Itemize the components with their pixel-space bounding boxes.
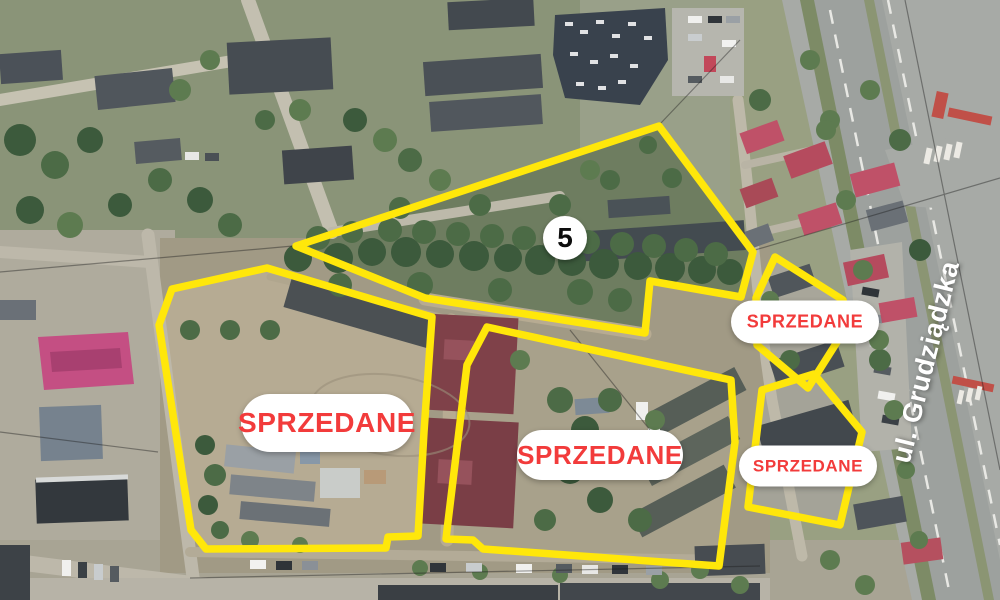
sold-badge-middle: SPRZEDANE: [517, 430, 683, 480]
sold-badge-top-right-text: SPRZEDANE: [747, 312, 863, 333]
sold-badge-left-text: SPRZEDANE: [238, 407, 416, 439]
sold-badge-top-right: SPRZEDANE: [731, 301, 879, 344]
sold-badge-bottom-right-text: SPRZEDANE: [753, 456, 863, 476]
sold-badge-left: SPRZEDANE: [241, 394, 413, 452]
sold-badge-middle-text: SPRZEDANE: [517, 440, 683, 471]
plot-number-marker[interactable]: 5: [543, 216, 587, 260]
aerial-map: SPRZEDANE SPRZEDANE SPRZEDANE SPRZEDANE …: [0, 0, 1000, 600]
sold-badge-bottom-right: SPRZEDANE: [739, 446, 877, 487]
